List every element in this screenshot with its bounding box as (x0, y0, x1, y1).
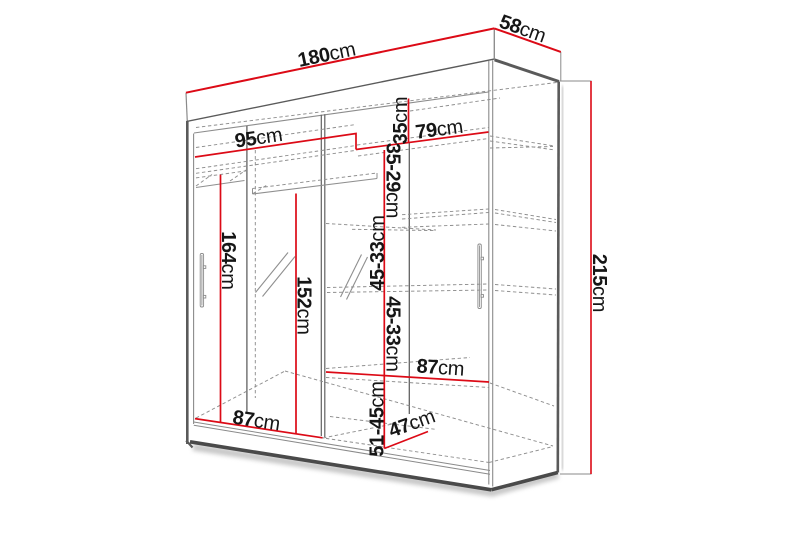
svg-text:215cm: 215cm (588, 254, 610, 312)
svg-text:58cm: 58cm (496, 11, 548, 48)
svg-text:51-45cm: 51-45cm (367, 381, 389, 456)
svg-text:35cm: 35cm (390, 97, 412, 145)
svg-text:164cm: 164cm (217, 231, 239, 289)
svg-text:35-29cm: 35-29cm (382, 143, 404, 218)
svg-text:45-33cm: 45-33cm (382, 296, 404, 371)
svg-text:87cm: 87cm (416, 355, 465, 380)
svg-text:152cm: 152cm (293, 276, 315, 334)
svg-text:45-33cm: 45-33cm (367, 215, 389, 290)
